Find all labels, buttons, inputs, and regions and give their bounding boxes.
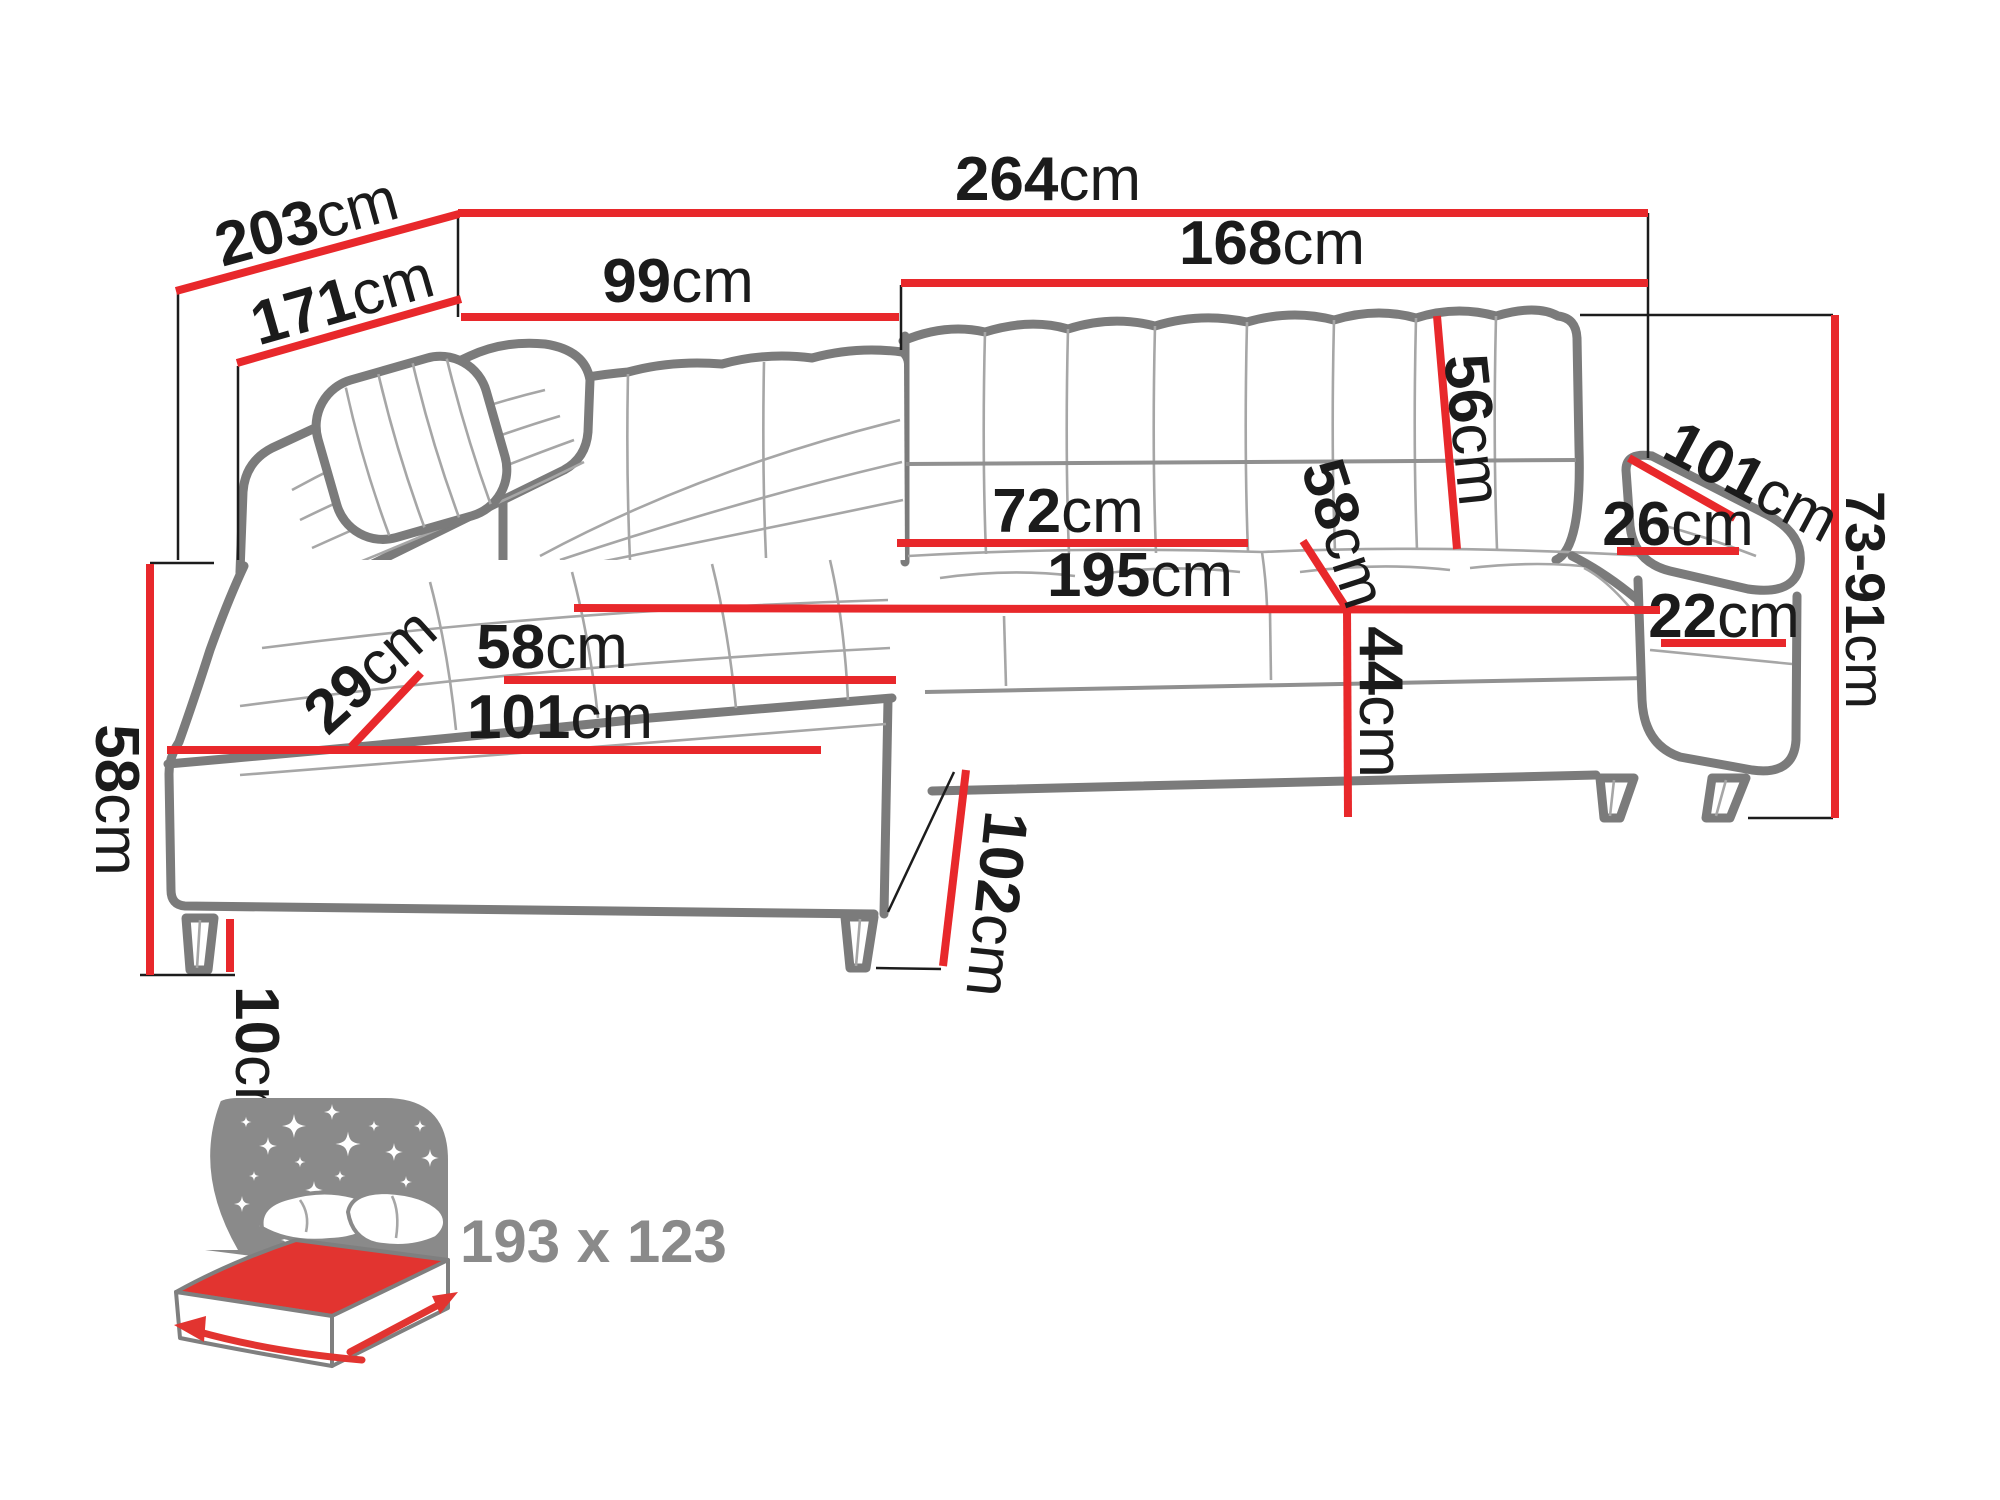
sofa-leg-right-inner (1600, 778, 1634, 818)
diagram-canvas: 264cm 203cm 171cm 99cm 168cm 56cm 72cm 1… (0, 0, 2000, 1500)
bed-pillows (262, 1192, 446, 1246)
sleeping-area-label: 193 x 123 (460, 1208, 727, 1275)
label-back-channel-width: 72cm (992, 477, 1144, 546)
label-chaise-front-length: 102cm (952, 808, 1040, 1000)
sleeping-function-icon: 193 x 123 (174, 1098, 727, 1366)
label-back-left-width: 99cm (602, 247, 754, 316)
label-seat-height: 44cm (1346, 626, 1415, 778)
sofa-leg-front-mid (845, 917, 874, 968)
label-chaise-seat-width: 58cm (476, 613, 628, 682)
label-overall-width: 264cm (955, 145, 1141, 214)
label-chaise-seat-length: 101cm (467, 683, 653, 752)
label-seat-length: 195cm (1047, 541, 1233, 610)
sofa-leg-front-left (186, 918, 214, 970)
bed-mattress (176, 1240, 448, 1366)
label-back-right-width: 168cm (1179, 209, 1365, 278)
label-armrest-width: 26cm (1602, 490, 1754, 559)
sofa-base-right (908, 608, 1660, 791)
sofa-dimension-diagram: 264cm 203cm 171cm 99cm 168cm 56cm 72cm 1… (0, 0, 2000, 1500)
sofa-leg-right-outer (1706, 778, 1746, 818)
label-armrest-height: 22cm (1648, 582, 1800, 651)
label-side-height: 58cm (82, 724, 151, 876)
label-total-height: 73-91cm (1834, 491, 1897, 709)
